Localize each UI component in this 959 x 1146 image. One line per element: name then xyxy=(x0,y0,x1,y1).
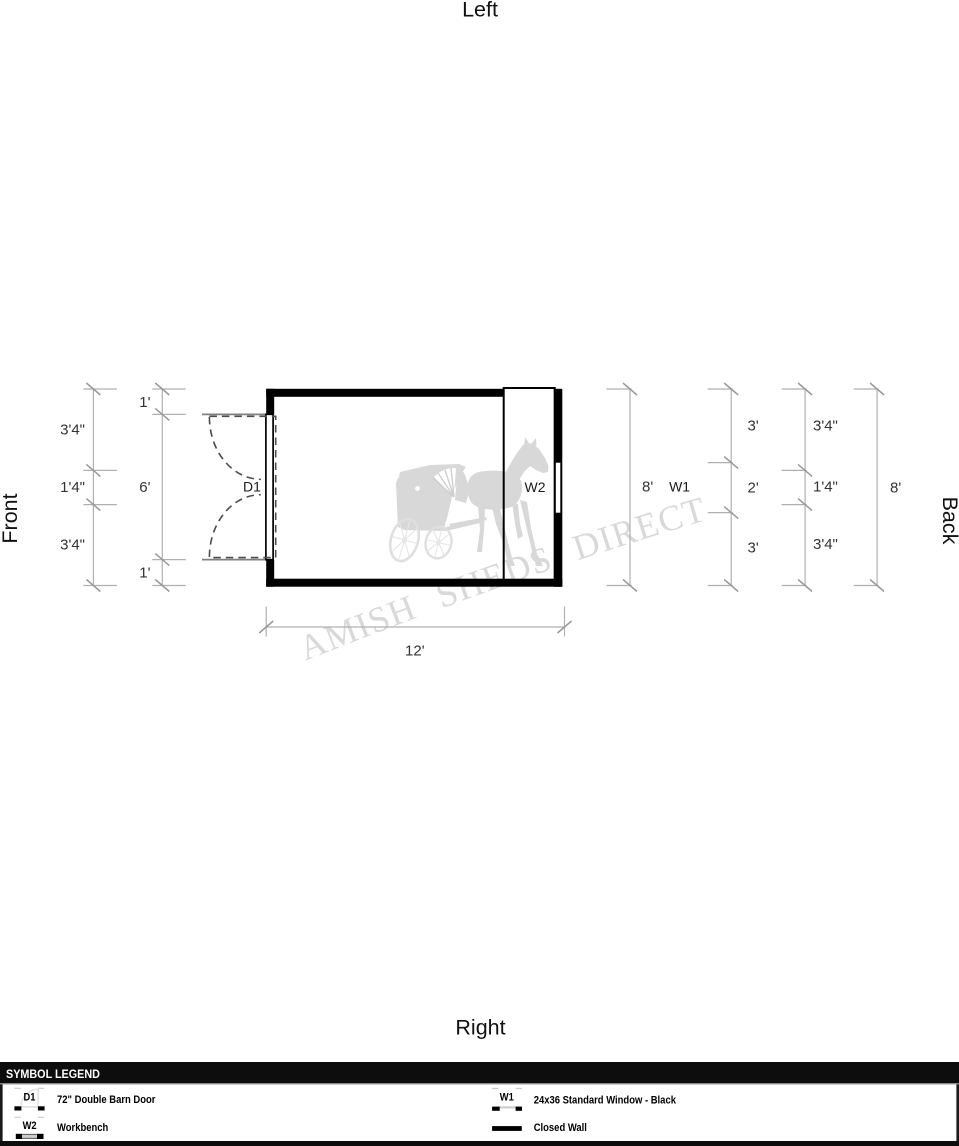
svg-text:24x36 Standard Window - Black: 24x36 Standard Window - Black xyxy=(534,1095,677,1107)
svg-text:D1: D1 xyxy=(243,478,261,494)
svg-text:AMISH SHEDS DIRECT: AMISH SHEDS DIRECT xyxy=(293,489,711,669)
svg-text:1': 1' xyxy=(139,394,150,411)
svg-text:1'4": 1'4" xyxy=(813,478,838,495)
svg-text:Workbench: Workbench xyxy=(57,1122,108,1134)
svg-text:12': 12' xyxy=(405,643,425,660)
svg-text:3'4": 3'4" xyxy=(60,536,85,553)
svg-text:3': 3' xyxy=(748,417,759,434)
svg-text:3'4": 3'4" xyxy=(813,536,838,553)
svg-text:8': 8' xyxy=(890,479,901,496)
svg-text:72" Double Barn Door: 72" Double Barn Door xyxy=(57,1094,155,1106)
svg-text:3'4": 3'4" xyxy=(813,418,838,435)
svg-text:W1: W1 xyxy=(669,478,690,494)
svg-text:1': 1' xyxy=(139,565,150,582)
svg-text:Right: Right xyxy=(455,1016,505,1040)
svg-text:Back: Back xyxy=(938,497,959,545)
svg-text:1'4": 1'4" xyxy=(60,479,85,496)
svg-text:Front: Front xyxy=(0,493,22,543)
svg-text:D1: D1 xyxy=(24,1092,36,1104)
svg-text:3': 3' xyxy=(748,540,759,557)
svg-text:8': 8' xyxy=(642,478,653,495)
svg-text:2': 2' xyxy=(748,479,759,496)
svg-text:Left: Left xyxy=(462,0,498,22)
svg-text:6': 6' xyxy=(139,479,150,496)
svg-text:W1: W1 xyxy=(500,1092,514,1104)
svg-text:W2: W2 xyxy=(23,1121,37,1133)
svg-text:SYMBOL LEGEND: SYMBOL LEGEND xyxy=(6,1068,100,1081)
svg-text:W2: W2 xyxy=(525,479,546,495)
svg-text:Closed Wall: Closed Wall xyxy=(534,1122,587,1134)
svg-text:3'4": 3'4" xyxy=(60,422,85,439)
